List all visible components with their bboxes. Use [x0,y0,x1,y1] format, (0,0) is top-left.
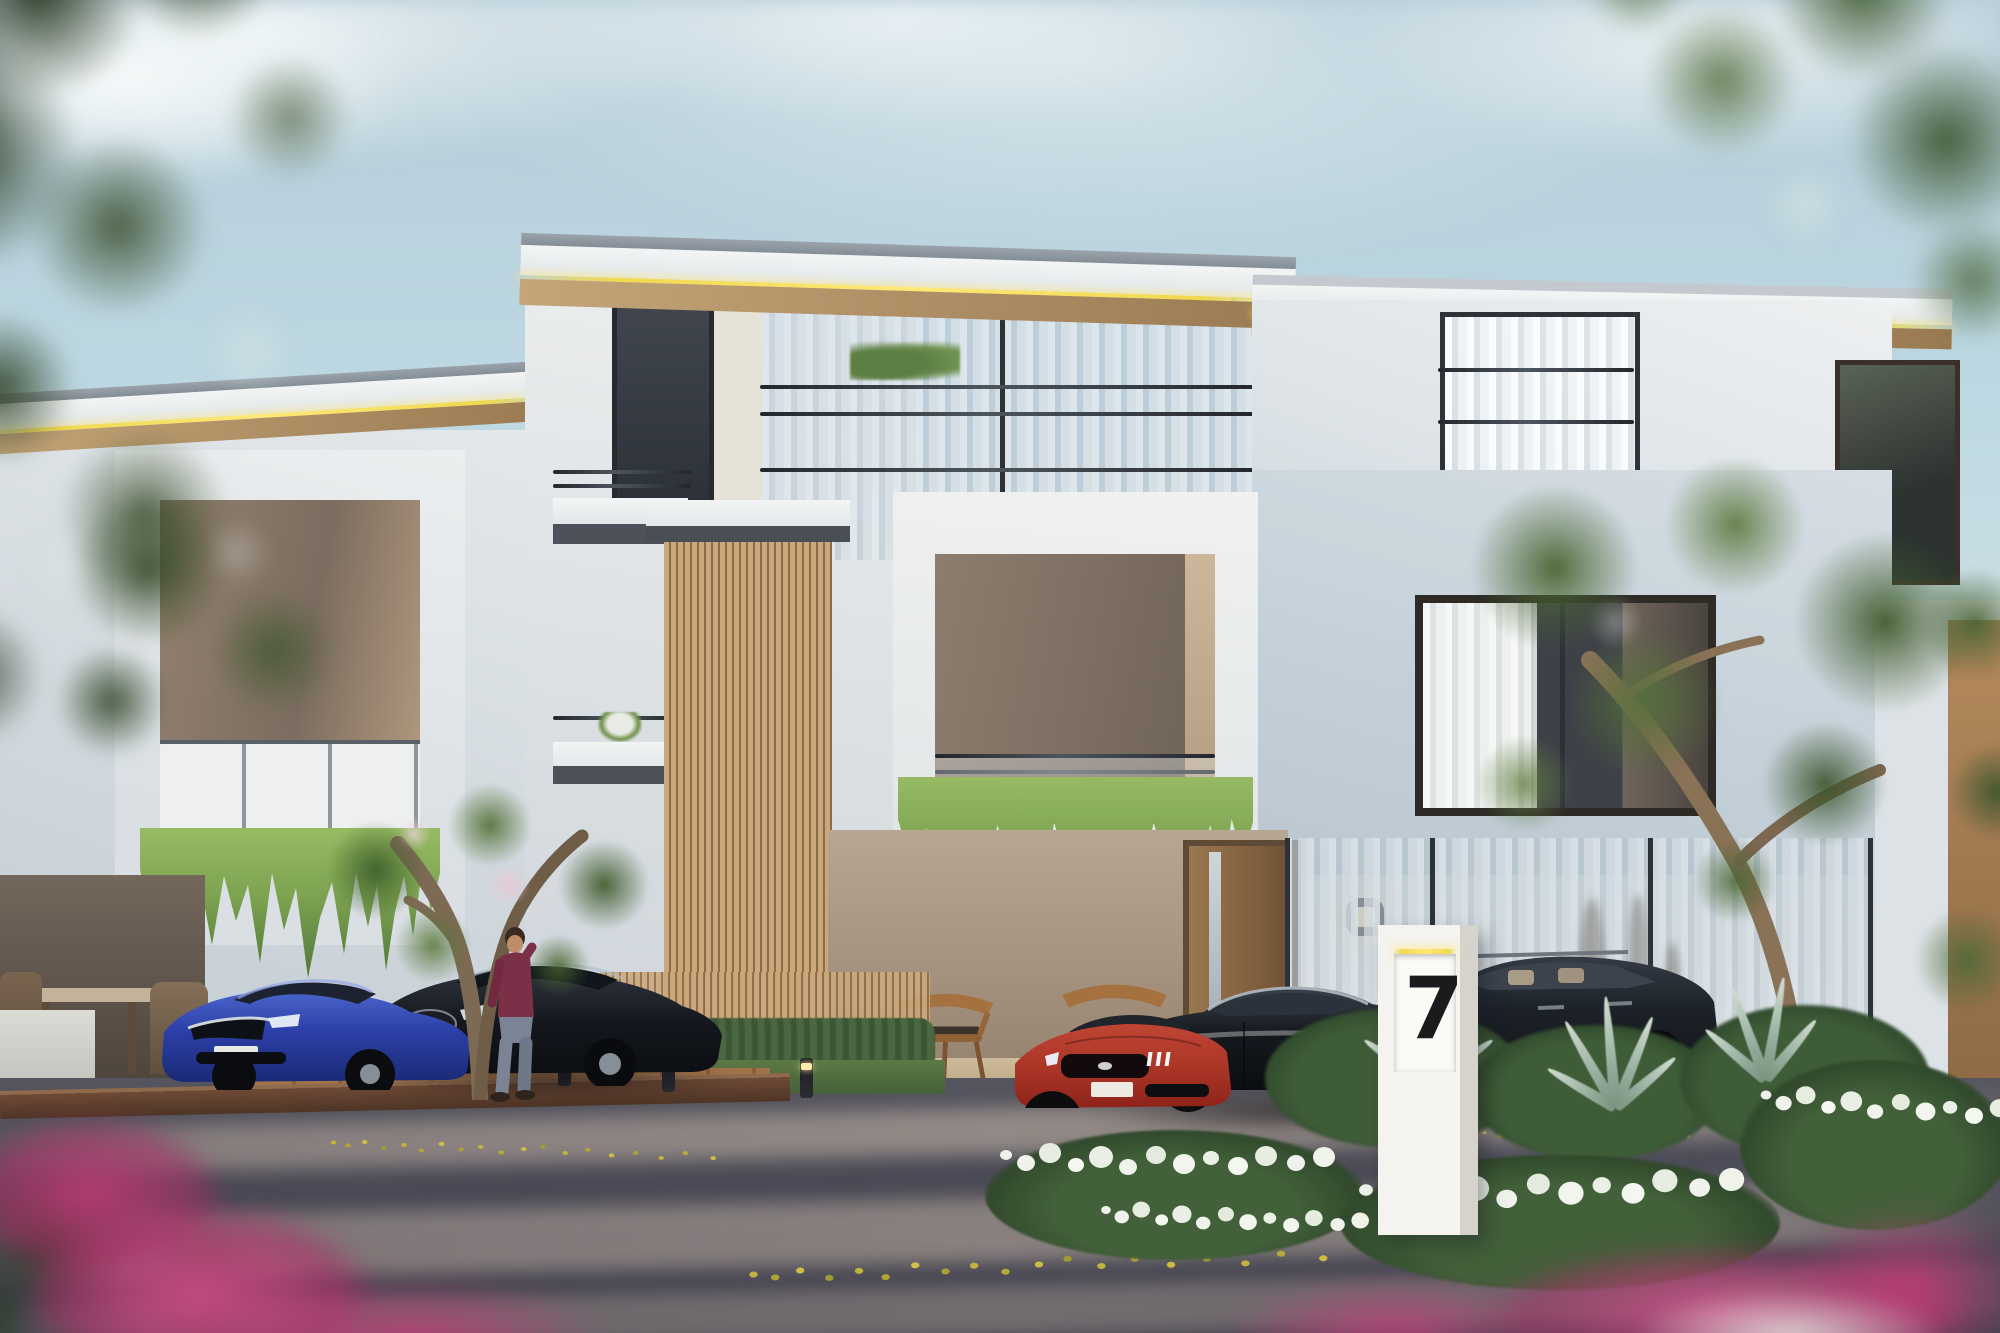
slat-column-cap-band [646,526,850,542]
blurred-canopy-topright [1470,0,2000,430]
white-flowers [1000,1150,1012,1160]
house-number-pillar: 7 [1378,925,1478,1235]
patio-table-leg [128,1002,136,1074]
agave-plant [1700,965,1830,1080]
car-red-muscle [1005,992,1240,1120]
architectural-render-scene: 7 [0,0,2000,1333]
balcony-flower-pot [598,712,642,742]
car-roof-rail [1478,952,1628,956]
slat-column-cap [646,500,850,526]
white-planter-box [0,1010,95,1085]
right-edge-foliage [1870,540,2000,1100]
bollard-glow [801,1063,812,1070]
person-leg [524,1043,526,1089]
person-shoe [490,1092,510,1102]
person-leg [502,1043,506,1091]
person-shoe [515,1090,535,1100]
upper-window-left [612,300,714,525]
terrace-railing-bar [760,412,1260,416]
car-lower-intake [1145,1084,1209,1097]
terrace-railing-bar [760,385,1260,389]
bollard-light [800,1058,813,1098]
license-plate [1091,1082,1133,1097]
blurred-tree-left-cluster [40,470,400,800]
agave-plant [1540,988,1690,1108]
man-on-phone [468,925,563,1105]
pony-badge [1098,1062,1112,1070]
car-seat [1558,968,1584,983]
terrace-railing-bar [760,468,1260,472]
terrace-planter-greens [850,340,960,380]
car-seat [1508,970,1534,985]
house-number: 7 [1404,966,1464,1052]
person-face [507,935,523,953]
flowerbed-greens [985,1130,1365,1260]
central-frame-box [893,492,1258,887]
house-number-panel: 7 [1394,954,1456,1072]
